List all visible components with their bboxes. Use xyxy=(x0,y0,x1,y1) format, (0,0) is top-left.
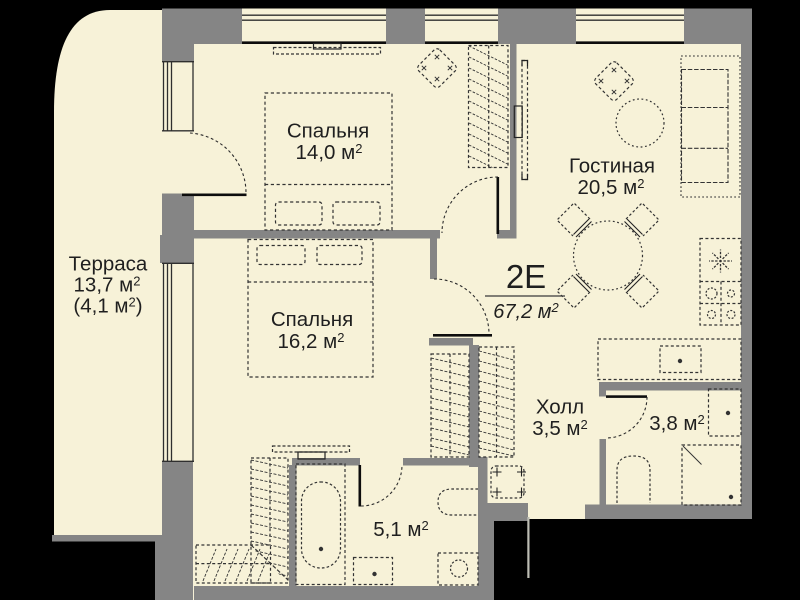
svg-text:67,2 м2: 67,2 м2 xyxy=(493,300,559,323)
svg-text:16,2 м2: 16,2 м2 xyxy=(278,330,345,353)
svg-text:Гостиная: Гостиная xyxy=(569,155,655,178)
svg-text:Спальня: Спальня xyxy=(271,308,353,331)
svg-text:Спальня: Спальня xyxy=(287,120,369,143)
svg-text:3,8 м2: 3,8 м2 xyxy=(649,412,705,435)
svg-text:3,5 м2: 3,5 м2 xyxy=(532,417,588,440)
svg-text:2Е: 2Е xyxy=(506,258,546,295)
svg-text:Терраса: Терраса xyxy=(69,253,148,276)
svg-text:14,0 м2: 14,0 м2 xyxy=(296,141,363,164)
svg-text:13,7 м2: 13,7 м2 xyxy=(74,274,141,297)
svg-text:20,5 м2: 20,5 м2 xyxy=(578,176,645,199)
svg-text:5,1 м2: 5,1 м2 xyxy=(373,518,429,541)
svg-text:Холл: Холл xyxy=(536,396,584,419)
